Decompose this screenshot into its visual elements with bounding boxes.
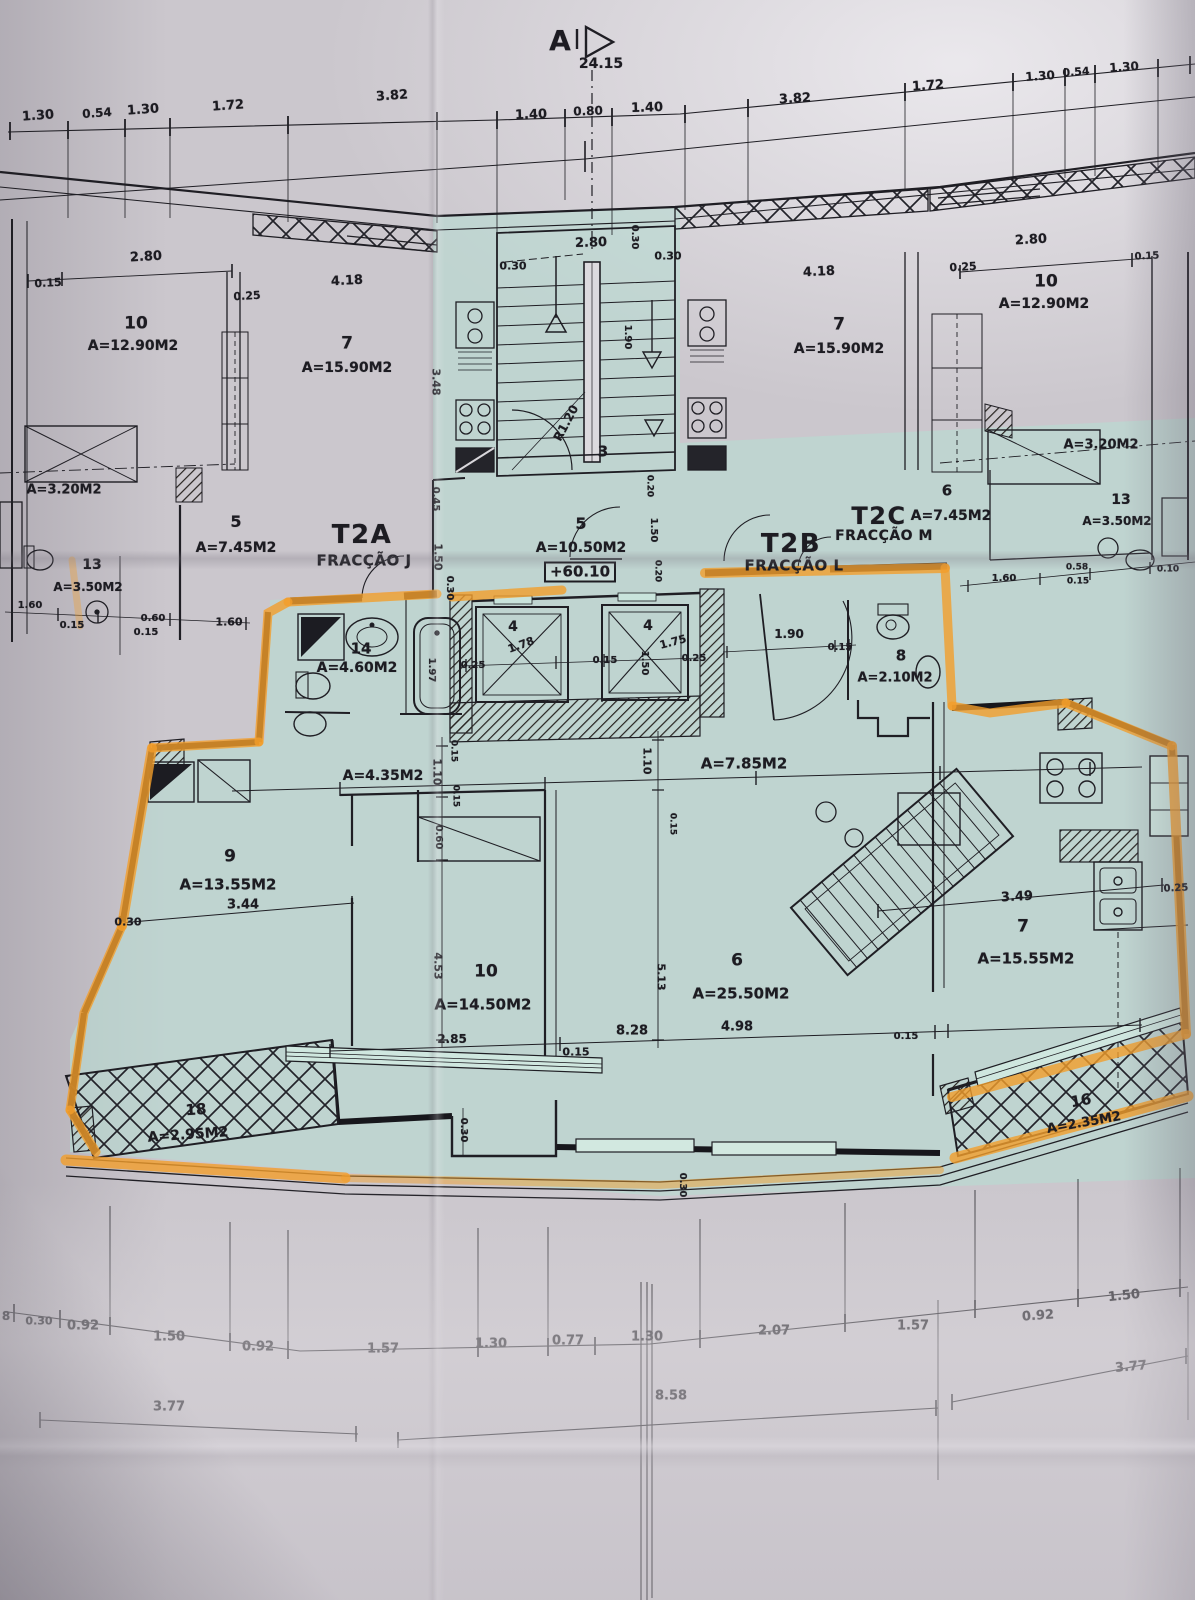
dimension-label: 1.60	[215, 617, 242, 628]
room-area-label: A=3.20M2	[1063, 439, 1138, 452]
dimension-label: 1.30	[631, 1331, 663, 1344]
room-number-label: 8	[896, 649, 906, 664]
dimension-label: 0.92	[67, 1320, 99, 1333]
room-number-label: 14	[351, 642, 372, 657]
fraction-label: FRACÇÃO J	[316, 554, 411, 569]
room-number-label: 6	[731, 953, 743, 970]
room-number-label: 4	[508, 620, 518, 634]
room-area-label: A=10.50M2	[536, 541, 627, 555]
dimension-label: 0.15	[1134, 251, 1159, 262]
dimension-label: 0.80	[573, 104, 603, 117]
room-area-label: A=7.45M2	[196, 541, 277, 555]
dimension-label: 1.40	[631, 101, 664, 115]
dimension-label: 0.15	[34, 277, 62, 289]
room-area-label: A=15.90M2	[794, 342, 885, 356]
dimension-label: 1.30	[1109, 60, 1139, 74]
dimension-label: 4.18	[803, 265, 836, 280]
dimension-label: 24.15	[579, 57, 623, 71]
dimension-label: 1.57	[367, 1343, 399, 1356]
room-area-label: A=12.90M2	[999, 297, 1090, 311]
dimension-label: 0.15	[60, 621, 85, 631]
dimension-label: 3.77	[153, 1401, 185, 1414]
fraction-label: FRACÇÃO L	[744, 559, 843, 574]
room-area-label: A=15.90M2	[302, 361, 393, 375]
dimension-label: 0.25	[682, 654, 707, 664]
dimension-label: 0.15	[668, 813, 677, 835]
dimension-label: 0.92	[1022, 1308, 1055, 1323]
room-number-label: 7	[1017, 919, 1029, 936]
dimension-label: 1.50	[153, 1331, 185, 1344]
dimension-label: 0.30	[114, 917, 141, 928]
dimension-label: 1.97	[426, 658, 436, 683]
dimension-label: 1.90	[774, 628, 804, 640]
dimension-label: 8.28	[616, 1025, 648, 1038]
dimension-label: 1.72	[212, 98, 245, 113]
dimension-label: 0.58	[1066, 564, 1088, 573]
dimension-label: 1.50	[433, 543, 444, 570]
fraction-label: FRACÇÃO M	[835, 529, 933, 543]
dimension-label: R1.20	[552, 403, 581, 443]
unit-title-label: T2B	[761, 531, 821, 557]
dimension-label: 0.15	[593, 656, 618, 666]
room-area-label: A=4.60M2	[317, 661, 398, 675]
dimension-label: 0.15	[894, 1032, 919, 1042]
room-number-label: 13	[82, 558, 101, 572]
dimension-label: 1.50	[648, 518, 658, 543]
dimension-label: 1.90	[622, 325, 632, 350]
dimension-label: 2.80	[575, 236, 608, 250]
dimension-label: 1.10	[432, 758, 443, 785]
room-number-label: 18	[185, 1102, 207, 1118]
floorplan-photo: A24.151.300.541.301.723.821.400.801.403.…	[0, 0, 1195, 1600]
room-number-label: 4	[643, 619, 653, 633]
dimension-label: 2.85	[437, 1033, 467, 1045]
dimension-label: 0.30	[444, 576, 454, 601]
dimension-label: 0.15	[449, 740, 458, 762]
dimension-label: 0.30	[677, 1173, 687, 1198]
dimension-label: 0.10	[1157, 566, 1179, 575]
dimension-label: 0.25	[1163, 883, 1188, 894]
dimension-label: 3.44	[227, 899, 259, 912]
dimension-label: 0.45	[430, 487, 440, 512]
dimension-label: 3.82	[779, 92, 812, 107]
dimension-label: 1.72	[912, 78, 945, 93]
room-number-label: 9	[224, 849, 236, 866]
dimension-label: 3.77	[1114, 1359, 1147, 1375]
dimension-label: 0.25	[233, 290, 261, 302]
room-number-label: 10	[474, 964, 498, 981]
dimension-label: 4.98	[721, 1021, 753, 1034]
room-number-label: 7	[833, 317, 845, 334]
dimension-label: 1.57	[897, 1320, 929, 1333]
dimension-label: 0.77	[552, 1335, 584, 1348]
dimension-label: 0.15	[562, 1047, 589, 1058]
room-area-label: A=7.85M2	[701, 757, 788, 772]
dimension-label: 0.30	[629, 225, 639, 250]
dimension-label: 4.18	[331, 274, 364, 289]
room-number-label: 10	[1034, 274, 1058, 291]
dimension-label: 0.30	[458, 1118, 468, 1143]
dimension-label: 0.15	[134, 628, 159, 638]
unit-title-label: T2C	[851, 504, 906, 528]
dimension-label: 2.80	[1015, 233, 1048, 248]
dimension-label: 0.30	[499, 261, 526, 272]
room-number-label: 6	[942, 484, 952, 499]
room-area-label: A=4.35M2	[343, 769, 424, 783]
room-number-label: 16	[1069, 1092, 1092, 1110]
room-area-label: A=3.50M2	[53, 581, 122, 593]
room-number-label: 10	[124, 316, 148, 333]
room-number-label: 3	[598, 445, 608, 460]
dimension-label: 0.25	[949, 261, 977, 273]
room-number-label: 5	[230, 514, 241, 530]
unit-title-label: T2A	[332, 522, 392, 548]
dimension-label: 0.30	[654, 251, 681, 262]
dimension-label: 4.53	[433, 952, 444, 979]
dimension-label: 0.54	[82, 106, 112, 120]
room-area-label: A=14.50M2	[435, 998, 532, 1013]
dimension-label: 1.50	[1107, 1288, 1140, 1304]
room-area-label: A=2.10M2	[857, 672, 932, 685]
room-area-label: A=2.95M2	[147, 1125, 229, 1145]
dimension-label: 1.60	[992, 574, 1017, 584]
dimension-label: 1.40	[515, 108, 548, 122]
room-area-label: A=15.55M2	[978, 952, 1075, 967]
dimension-label: 2.80	[130, 250, 163, 265]
dimension-label: 1.10	[642, 747, 653, 774]
dimension-label: 0.54	[1062, 66, 1090, 79]
room-area-label: A=12.90M2	[88, 339, 179, 353]
dimension-label: 1.60	[18, 601, 43, 611]
level-mark-label: +60.10	[544, 562, 616, 583]
dimension-label: 1.50	[639, 651, 649, 676]
dimension-label: 0.92	[242, 1341, 274, 1354]
dimension-label: 0.20	[653, 560, 662, 582]
room-number-label: 7	[341, 336, 353, 353]
dimension-label: 0.30	[25, 1316, 52, 1327]
dimension-label: 2.07	[758, 1325, 790, 1338]
dimension-label: 0.60	[141, 614, 166, 624]
plan-annotations: A24.151.300.541.301.723.821.400.801.403.…	[0, 0, 1195, 1600]
dimension-label: 1.75	[658, 633, 687, 651]
room-number-label: 5	[575, 516, 586, 532]
dimension-label: 1.30	[475, 1338, 507, 1351]
dimension-label: 0.20	[645, 475, 654, 497]
dimension-label: 1.30	[127, 102, 160, 117]
dimension-label: 3.48	[431, 368, 442, 395]
dimension-label: 3.82	[376, 88, 409, 103]
room-area-label: A=3.20M2	[26, 484, 101, 497]
dimension-label: 1.30	[22, 108, 55, 123]
dimension-label: 3.49	[1001, 890, 1034, 905]
room-area-label: A=13.55M2	[180, 878, 277, 893]
room-area-label: A=25.50M2	[693, 987, 790, 1002]
dimension-label: 5.13	[656, 963, 667, 990]
dimension-label: 1.30	[1025, 69, 1055, 83]
dimension-label: 0.15	[828, 643, 853, 653]
dimension-label: 0.25	[461, 661, 486, 671]
dimension-label: 1.78	[506, 635, 535, 655]
room-number-label: 13	[1111, 493, 1130, 507]
section-marker-label: A	[549, 27, 571, 55]
dimension-label: 0.15	[451, 785, 460, 807]
room-area-label: A=3.50M2	[1082, 515, 1151, 527]
room-area-label: A=2.35M2	[1046, 1110, 1122, 1136]
dimension-label: 8.58	[655, 1390, 687, 1403]
dimension-label: 0.60	[433, 825, 443, 850]
room-area-label: A=7.45M2	[911, 509, 992, 523]
dimension-label: 8	[2, 1310, 10, 1322]
dimension-label: 0.15	[1067, 578, 1089, 587]
